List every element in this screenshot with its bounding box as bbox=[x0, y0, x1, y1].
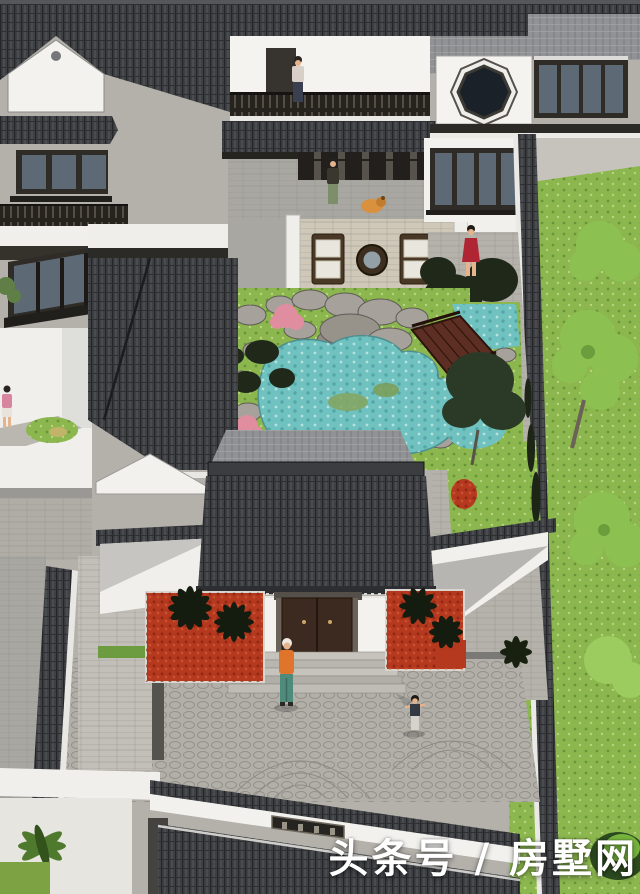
gable-finial bbox=[51, 51, 61, 61]
cypress-tree bbox=[532, 472, 541, 524]
balcony-railing bbox=[0, 206, 128, 226]
watermark-text: 头条号 / 房墅网 bbox=[329, 826, 638, 884]
doorway bbox=[266, 48, 296, 92]
villa-rendering bbox=[0, 0, 640, 894]
algae-patch bbox=[328, 393, 368, 411]
window-glass bbox=[22, 155, 46, 189]
octagon-lattice-window bbox=[458, 66, 510, 118]
roof-ridge bbox=[208, 462, 424, 476]
window-glass bbox=[52, 155, 76, 189]
rendering-root: 头条号 / 房墅网 bbox=[0, 0, 640, 894]
left-edge bbox=[0, 416, 92, 560]
pavilion-roof-front bbox=[198, 476, 434, 588]
palm-tree bbox=[500, 636, 532, 668]
cypress-tree bbox=[527, 424, 535, 472]
pavilion-roof-back bbox=[210, 430, 416, 466]
window-glass bbox=[82, 155, 106, 189]
balcony-railing bbox=[230, 95, 430, 116]
window-awning bbox=[0, 116, 118, 144]
top-roof-band bbox=[0, 0, 640, 40]
terrace-wall bbox=[230, 36, 430, 94]
